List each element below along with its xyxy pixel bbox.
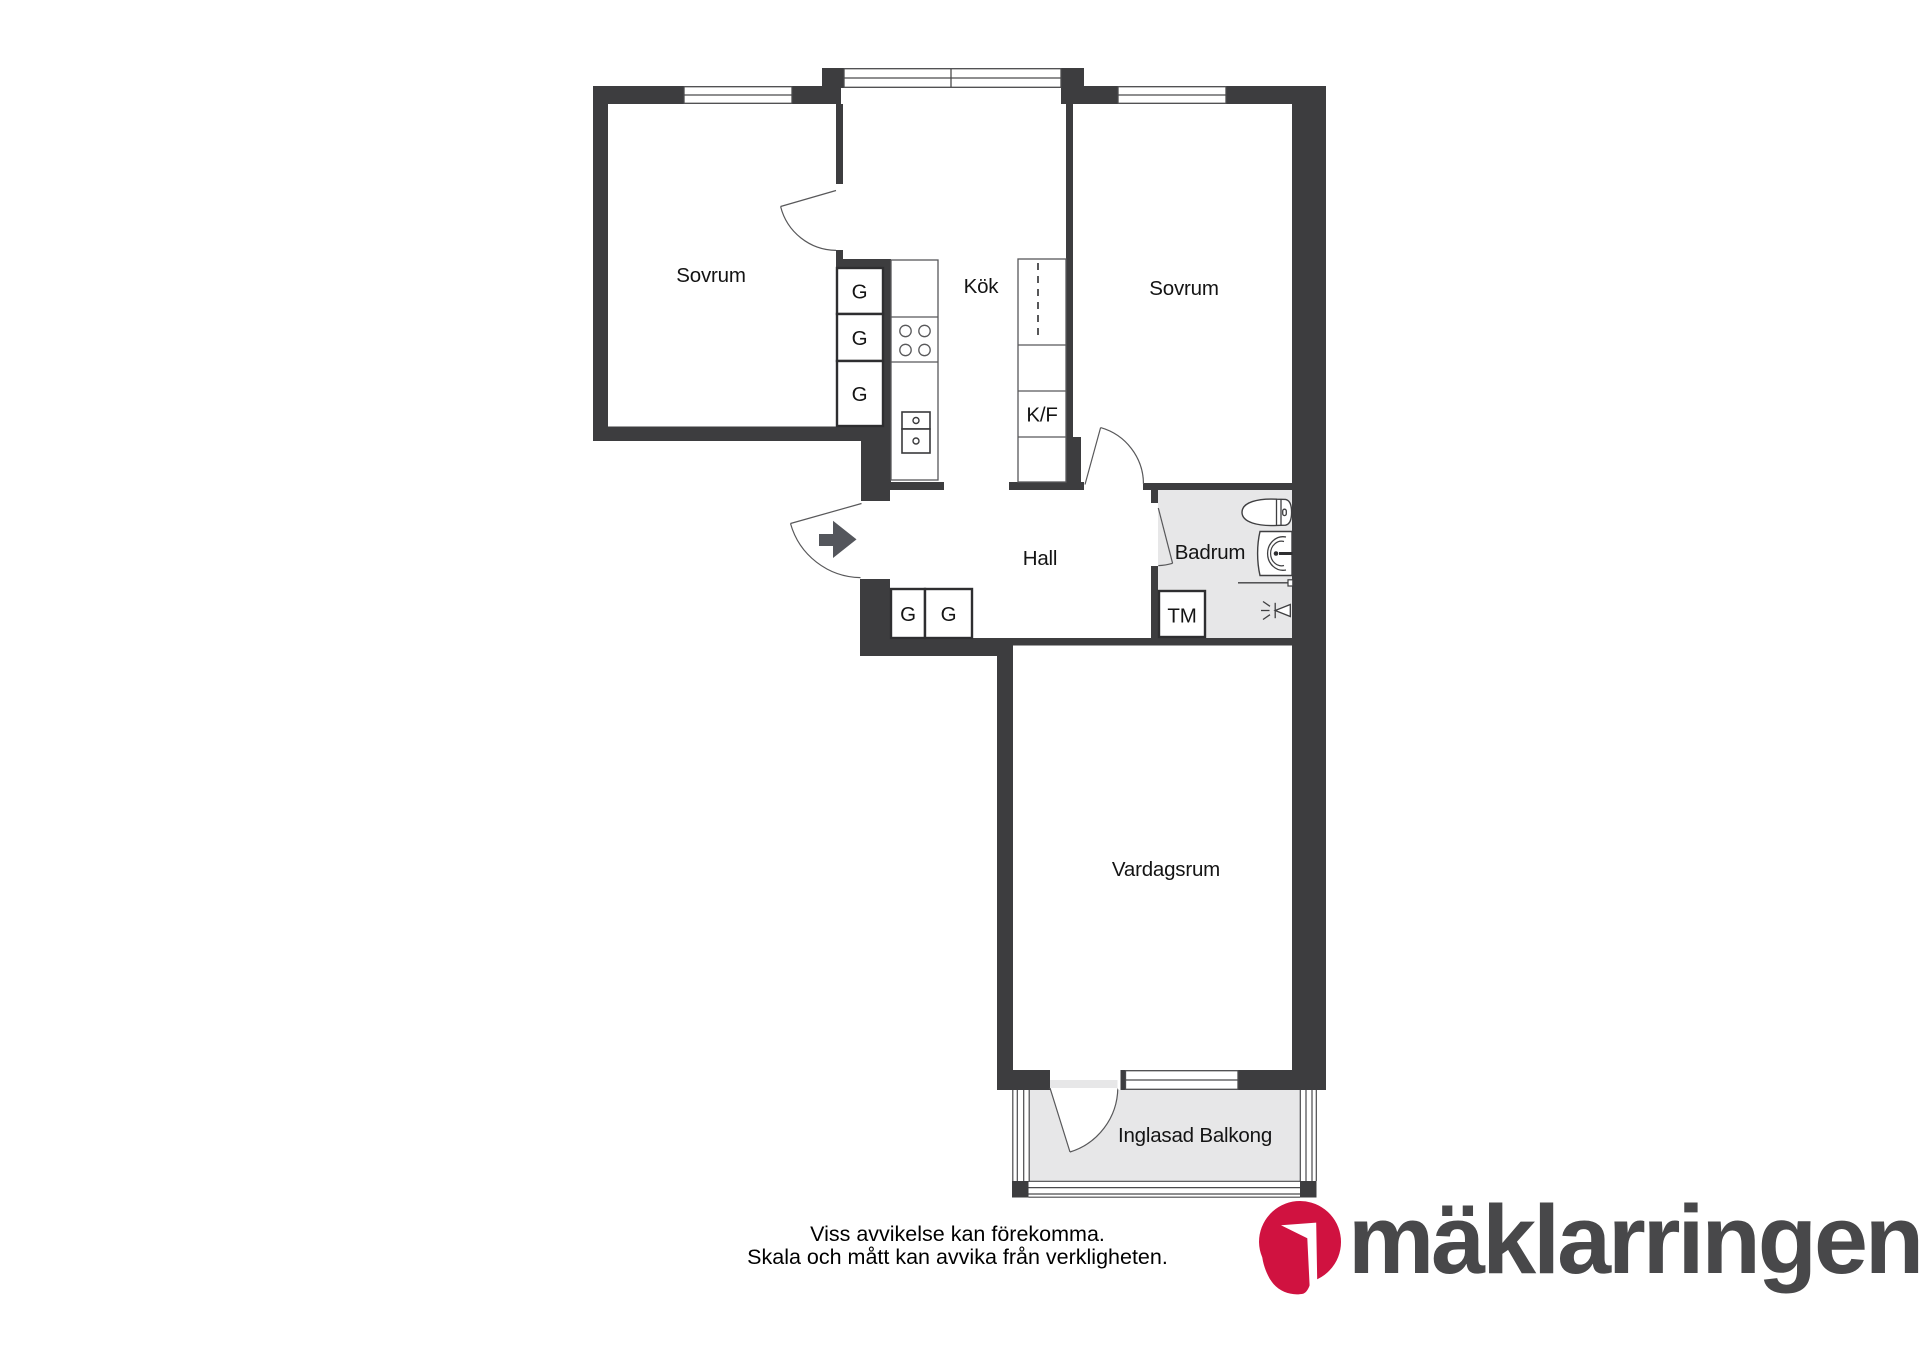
- svg-text:G: G: [941, 603, 957, 626]
- svg-text:mäklarringen: mäklarringen: [1348, 1185, 1920, 1294]
- svg-text:Badrum: Badrum: [1175, 541, 1246, 564]
- svg-text:Hall: Hall: [1023, 547, 1058, 570]
- svg-text:Inglasad Balkong: Inglasad Balkong: [1118, 1124, 1272, 1147]
- svg-text:Skala och mått kan avvika från: Skala och mått kan avvika från verklighe…: [747, 1245, 1168, 1269]
- svg-text:TM: TM: [1167, 604, 1196, 627]
- svg-text:G: G: [900, 603, 916, 626]
- svg-text:Vardagsrum: Vardagsrum: [1112, 858, 1220, 881]
- svg-text:K/F: K/F: [1026, 403, 1057, 426]
- svg-text:G: G: [852, 327, 868, 350]
- svg-text:G: G: [852, 280, 868, 303]
- svg-text:Viss avvikelse kan förekomma.: Viss avvikelse kan förekomma.: [810, 1222, 1105, 1246]
- svg-text:Kök: Kök: [964, 275, 1000, 298]
- svg-text:Sovrum: Sovrum: [676, 264, 745, 287]
- svg-text:Sovrum: Sovrum: [1149, 277, 1218, 300]
- svg-text:G: G: [852, 383, 868, 406]
